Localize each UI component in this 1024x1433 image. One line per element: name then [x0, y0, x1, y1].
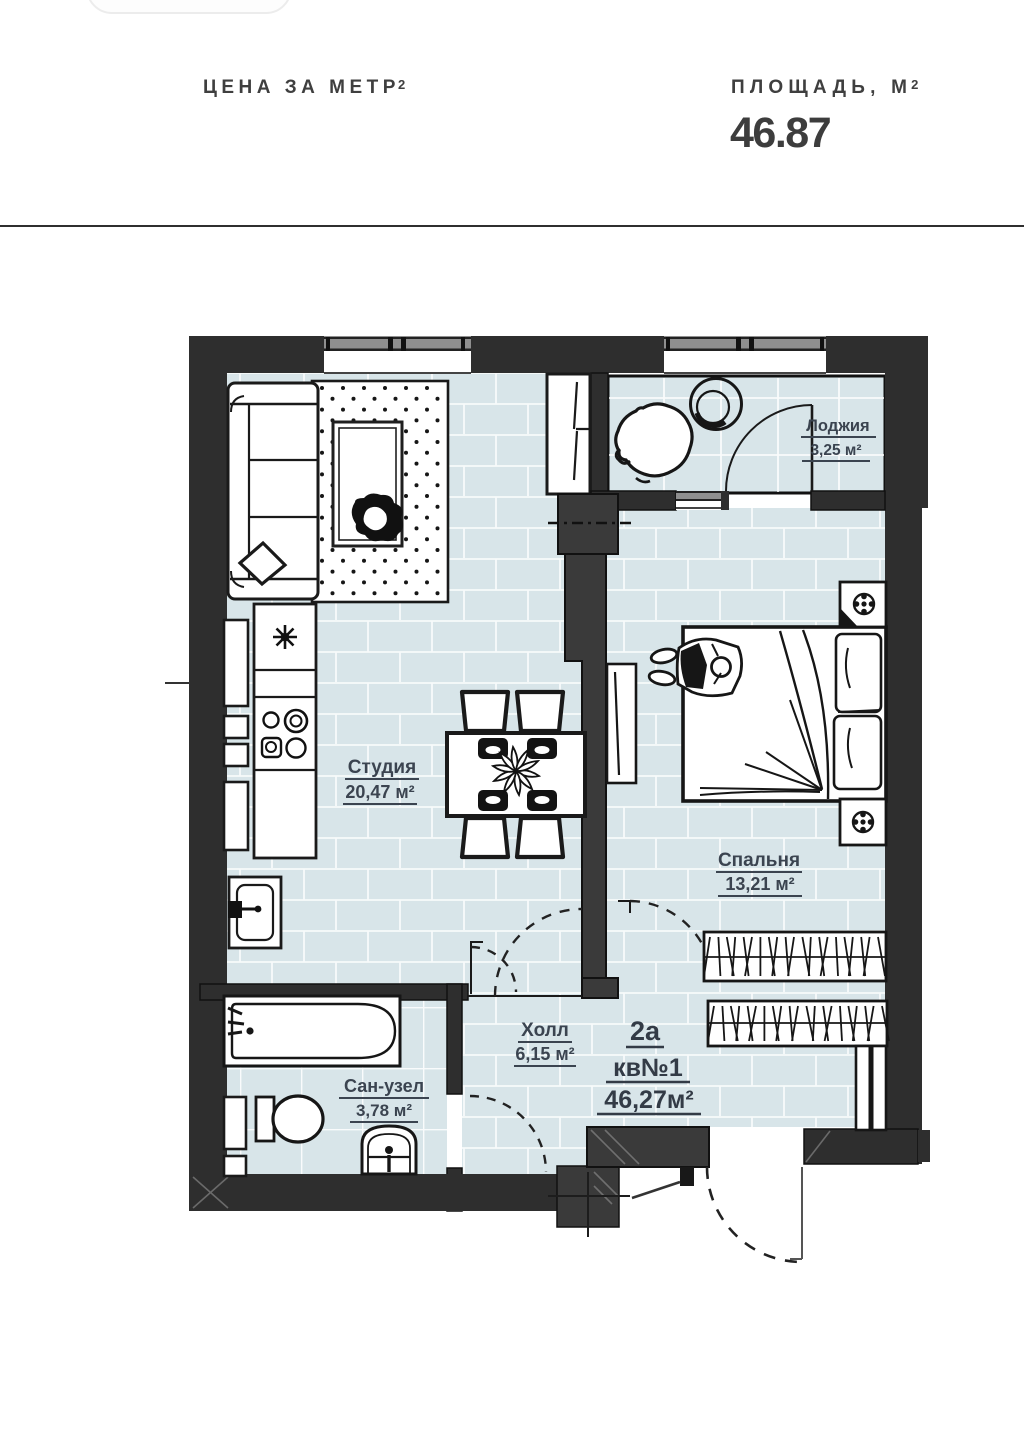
svg-text:Лоджия: Лоджия — [806, 417, 869, 435]
svg-text:2а: 2а — [630, 1016, 661, 1046]
svg-text:46,27м²: 46,27м² — [604, 1086, 693, 1114]
svg-text:3,25 м²: 3,25 м² — [810, 442, 861, 459]
svg-text:3,78 м²: 3,78 м² — [356, 1101, 412, 1120]
svg-text:Холл: Холл — [521, 1020, 569, 1041]
svg-text:20,47 м²: 20,47 м² — [345, 782, 414, 802]
svg-text:кв№1: кв№1 — [613, 1054, 683, 1082]
svg-text:13,21 м²: 13,21 м² — [725, 874, 794, 894]
svg-text:6,15 м²: 6,15 м² — [515, 1044, 574, 1064]
svg-text:Сан-узел: Сан-узел — [344, 1076, 424, 1096]
svg-text:Спальня: Спальня — [718, 850, 800, 871]
svg-text:Студия: Студия — [348, 757, 416, 778]
